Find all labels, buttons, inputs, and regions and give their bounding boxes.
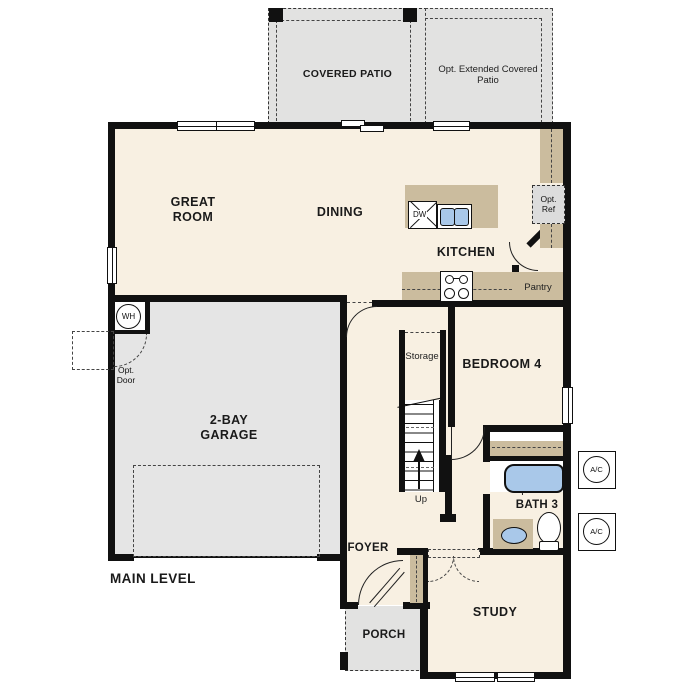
sliding-door (360, 125, 384, 132)
storage-opening (405, 332, 440, 333)
ac-circle: A/C (583, 456, 610, 483)
floor-plan: COVERED PATIO Opt. Extended Covered Pati… (0, 0, 687, 687)
porch-post (340, 652, 348, 670)
wall (340, 602, 358, 609)
stair-rail (433, 400, 440, 492)
up-label: Up (408, 494, 434, 506)
burner (444, 288, 455, 299)
kitchen-label: KITCHEN (420, 243, 512, 261)
closet-rod-line (492, 447, 561, 448)
cased-opening (347, 302, 372, 303)
bedroom4-label: BEDROOM 4 (452, 355, 552, 373)
wall (445, 455, 452, 522)
bath-sink (501, 527, 527, 544)
dishwasher: DW (408, 201, 437, 229)
range (440, 271, 473, 302)
wall (483, 494, 490, 552)
dishwasher-label: DW (412, 210, 427, 219)
wall (483, 425, 570, 432)
ac-unit: A/C (578, 451, 616, 489)
ac-label: A/C (590, 465, 603, 474)
page-title: MAIN LEVEL (110, 570, 250, 588)
window (433, 121, 470, 131)
burner (459, 275, 468, 284)
bath3-label: BATH 3 (515, 491, 559, 521)
sink-basin (454, 208, 469, 226)
pantry-label: Pantry (514, 281, 562, 295)
wall (420, 672, 570, 679)
bathtub (504, 464, 564, 493)
burner-dash (453, 278, 459, 279)
burner (458, 288, 469, 299)
stair-dash-line (406, 467, 434, 468)
closet (490, 441, 563, 456)
counter-dash-line (551, 129, 552, 183)
patio-post (269, 8, 283, 22)
sink-basin (440, 208, 455, 226)
window (562, 387, 573, 424)
window (107, 247, 117, 284)
burner (445, 275, 454, 284)
window (216, 121, 255, 131)
wall (397, 548, 428, 555)
wall (340, 295, 347, 609)
wh-label: WH (122, 312, 135, 321)
stair-treads (405, 404, 435, 492)
opt-refrigerator: Opt. Ref (532, 185, 565, 224)
ac-unit: A/C (578, 513, 616, 551)
patio-post (403, 8, 417, 22)
counter-dash-line (551, 224, 552, 248)
closet-dash-line (416, 556, 417, 602)
foyer-label: FOYER (340, 541, 396, 557)
window (497, 672, 535, 682)
wall (403, 602, 430, 609)
dining-label: DINING (300, 202, 380, 222)
porch-label: PORCH (350, 628, 418, 644)
kitchen-sink (437, 204, 472, 229)
opt-ref-label: Opt. Ref (536, 195, 562, 215)
study-label: STUDY (455, 603, 535, 621)
window (177, 121, 217, 131)
wall (108, 554, 134, 561)
up-arrow-stem (418, 461, 420, 489)
window (455, 672, 495, 682)
great-room-label: GREAT ROOM (157, 193, 229, 227)
garage-label: 2-BAY GARAGE (184, 410, 274, 446)
toilet-base (539, 541, 559, 551)
optional-door-opening (382, 124, 432, 126)
stair-dash-line (406, 427, 434, 428)
water-heater: WH (116, 304, 141, 329)
wall (108, 295, 347, 302)
storage-label: Storage (398, 350, 446, 364)
ac-circle: A/C (583, 518, 610, 545)
garage-door-zone (133, 465, 320, 557)
covered-patio-label: COVERED PATIO (300, 56, 395, 92)
extended-patio-label: Opt. Extended Covered Patio (432, 60, 544, 90)
wall (440, 514, 456, 522)
opt-door-label: Opt. Door (108, 363, 144, 387)
ac-label: A/C (590, 527, 603, 536)
